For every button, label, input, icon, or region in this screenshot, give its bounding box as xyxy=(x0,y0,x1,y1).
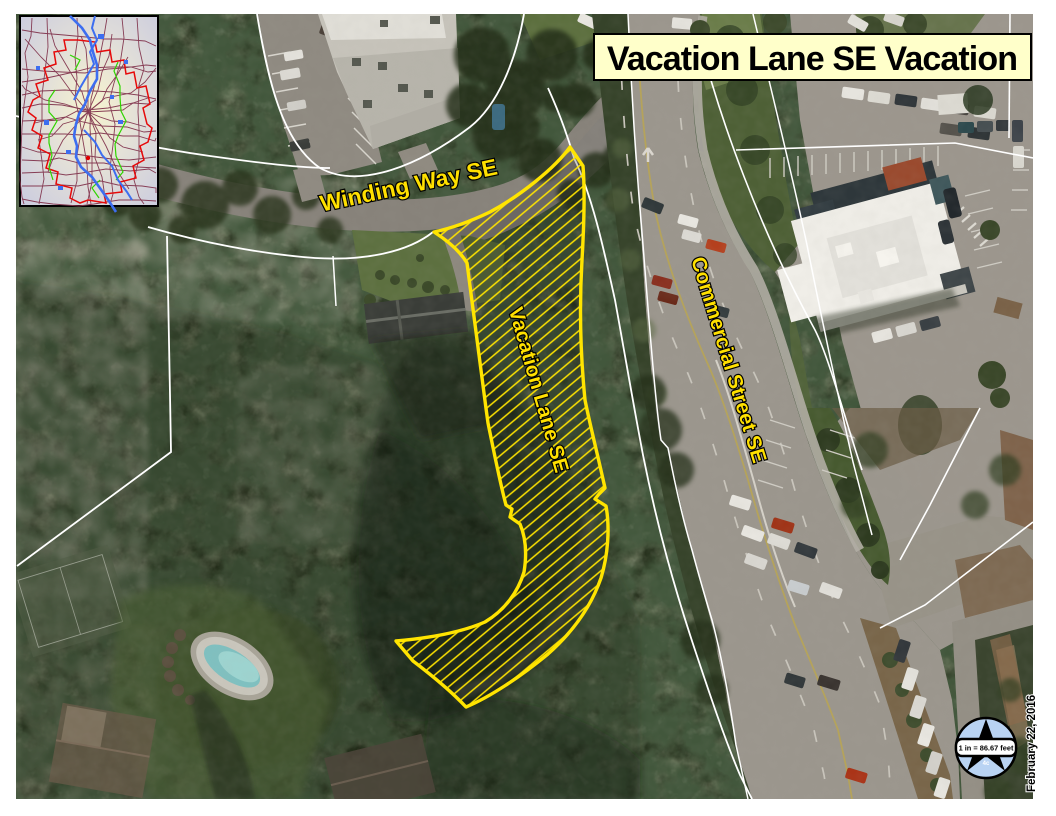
svg-text:1 in = 86.67 feet: 1 in = 86.67 feet xyxy=(959,744,1014,753)
svg-text:February 22, 2016: February 22, 2016 xyxy=(1026,695,1038,792)
svg-text:4c: 4c xyxy=(983,761,990,767)
svg-text:Vacation Lane SE Vacation: Vacation Lane SE Vacation xyxy=(607,40,1017,78)
